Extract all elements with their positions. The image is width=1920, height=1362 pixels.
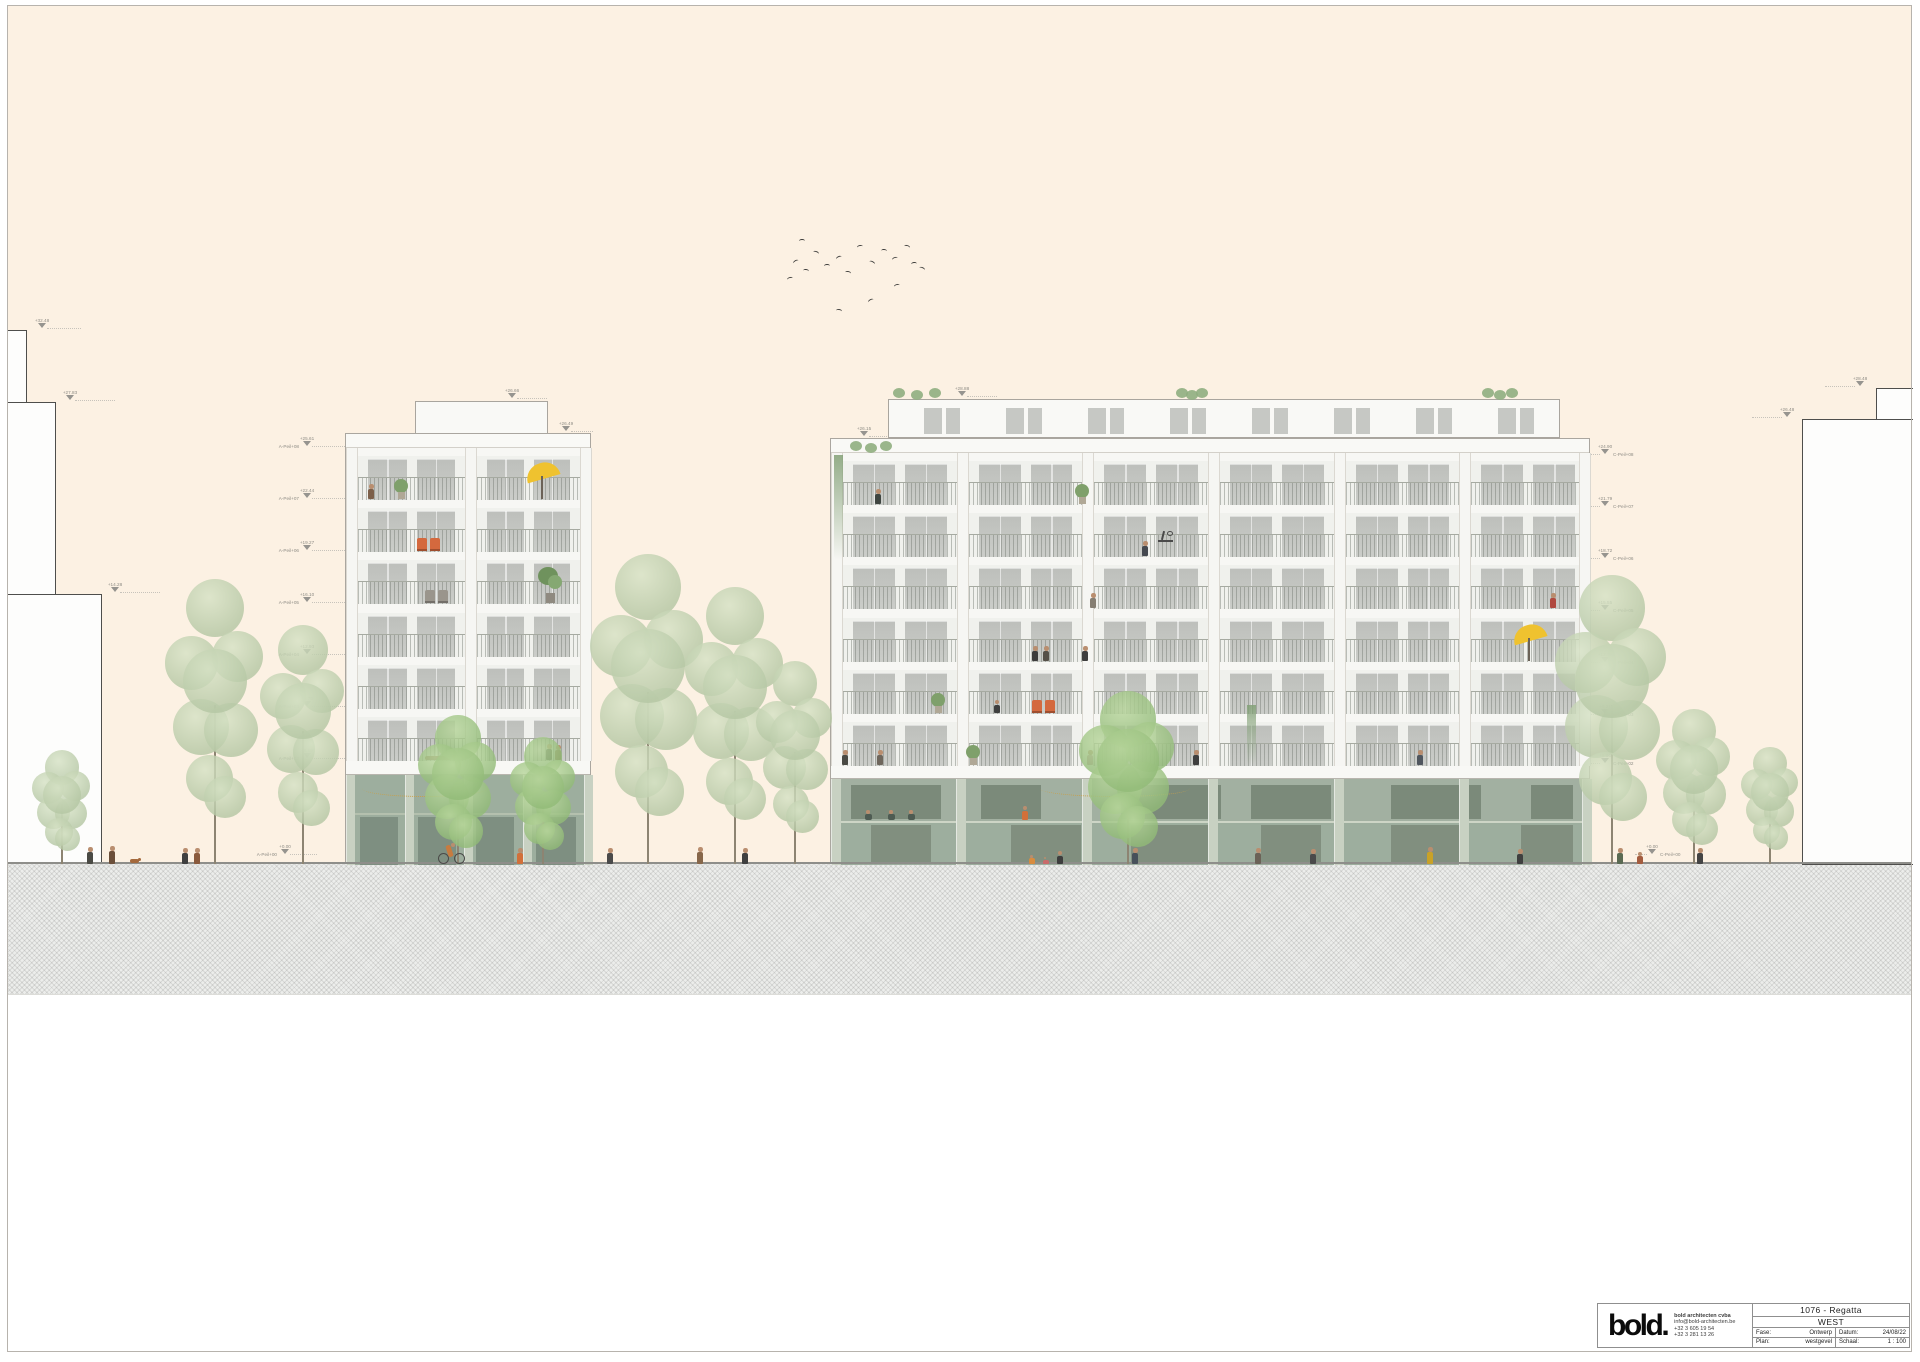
cyclist-head <box>451 843 455 847</box>
balcony-railing <box>1220 639 1334 662</box>
mezzanine-interior <box>981 785 1041 819</box>
person-head <box>1311 849 1316 854</box>
tree-foliage <box>786 800 819 833</box>
context-building-right <box>1876 388 1913 420</box>
ground-column <box>1208 779 1218 865</box>
plan-label: Plan: <box>1753 1338 1789 1347</box>
person-figure <box>517 848 524 864</box>
bird-icon <box>891 256 898 262</box>
balcony-opening <box>843 722 957 766</box>
person-head <box>1256 848 1261 853</box>
chair <box>1045 700 1055 713</box>
person-figure <box>1517 849 1524 864</box>
bird-icon <box>824 264 830 268</box>
balcony-railing <box>1471 482 1585 505</box>
tree-foliage <box>55 826 80 851</box>
tree-foliage <box>275 683 331 739</box>
right-building-parapet <box>831 439 1589 453</box>
shrub-blob <box>850 441 862 451</box>
bicycle-wheel <box>454 853 465 864</box>
level-marker-arrow-icon <box>1856 381 1864 386</box>
level-name-label: A-Peil+06 <box>264 548 299 553</box>
balcony-opening <box>1346 722 1460 766</box>
person-figure <box>875 489 882 504</box>
level-elevation-label: +16.10 <box>295 592 318 597</box>
balcony-opening <box>1346 461 1460 505</box>
plant-foliage <box>548 575 562 589</box>
level-marker-line <box>47 328 81 329</box>
balcony-railing <box>477 686 580 709</box>
person-body <box>842 755 848 765</box>
fase-datum-row: Fase: Ontwerp Datum: 24/08/22 <box>1753 1328 1909 1337</box>
level-elevation-label: +14.28 <box>103 582 126 587</box>
person-head <box>518 848 523 853</box>
balcony-opening <box>1220 461 1334 505</box>
storefront-interior <box>1391 825 1461 863</box>
balcony-railing <box>843 639 957 662</box>
person-figure <box>697 847 704 864</box>
shrub-blob <box>1196 388 1208 398</box>
plant-pot <box>935 706 942 713</box>
person-figure <box>1142 541 1149 556</box>
shrub-blob <box>1494 390 1506 400</box>
level-marker-arrow-icon <box>508 393 516 398</box>
bird-icon <box>911 262 917 267</box>
level-elevation-label: +28.88 <box>950 386 973 391</box>
person-head <box>1194 750 1199 755</box>
balcony-opening <box>1346 670 1460 714</box>
right-building-roof-volume <box>888 399 1560 438</box>
level-elevation-label: +18.72 <box>1593 548 1616 553</box>
level-marker-line <box>1825 386 1855 387</box>
plan-schaal-row: Plan: westgevel Schaal: 1 : 100 <box>1753 1338 1909 1347</box>
level-elevation-label: +19.27 <box>295 540 318 545</box>
penthouse-window <box>1088 408 1106 434</box>
balcony-opening <box>1346 513 1460 557</box>
balcony-opening <box>1220 565 1334 609</box>
person-figure <box>1637 852 1644 864</box>
balcony-opening <box>1346 618 1460 662</box>
bike-base <box>1158 540 1173 542</box>
tree-foliage <box>706 587 764 645</box>
facade-column <box>957 453 969 766</box>
balcony-opening <box>969 722 1083 766</box>
person-figure <box>1617 848 1624 864</box>
person-body <box>888 814 895 820</box>
balcony-opening <box>1471 513 1585 557</box>
bird-icon <box>894 283 901 288</box>
tree <box>1074 692 1182 864</box>
balcony-opening <box>843 513 957 557</box>
person-figure <box>994 700 1001 713</box>
person-figure <box>87 847 94 864</box>
level-marker-line <box>120 592 160 593</box>
tree-foliage <box>635 767 684 816</box>
person-head <box>866 810 870 814</box>
balcony-opening <box>843 618 957 662</box>
person-body <box>994 705 1000 713</box>
balcony-opening <box>969 670 1083 714</box>
person-body <box>1637 856 1643 864</box>
balcony-opening <box>1220 722 1334 766</box>
level-marker-arrow-icon <box>1601 501 1609 506</box>
penthouse-window <box>1028 408 1042 434</box>
tree-foliage <box>43 776 81 814</box>
ground-slab <box>831 766 1589 779</box>
person-head <box>878 750 883 755</box>
person-figure <box>182 848 189 864</box>
tree <box>29 749 95 864</box>
shrub-blob <box>865 443 877 453</box>
title-block-logo-cell: bold. bold architecten cvba info@bold-ar… <box>1598 1304 1753 1347</box>
person-figure <box>1310 849 1317 864</box>
person-body <box>1043 651 1049 661</box>
person-body <box>1029 858 1035 864</box>
balcony-railing <box>843 534 957 557</box>
balcony-railing <box>1346 691 1460 714</box>
chair <box>1032 700 1042 713</box>
facade-column <box>1334 453 1346 766</box>
tree <box>506 736 580 864</box>
person-head <box>698 847 703 852</box>
person-head <box>1428 847 1433 852</box>
balcony-opening <box>1220 618 1334 662</box>
level-marker-line <box>75 400 115 401</box>
balcony-railing <box>1346 743 1460 766</box>
tree-foliage <box>1599 773 1647 821</box>
parasol-pole <box>541 476 543 499</box>
balcony-railing <box>477 634 580 657</box>
level-elevation-label: +26.15 <box>852 426 875 431</box>
plan-value: westgevel <box>1789 1338 1835 1347</box>
bird-icon <box>799 239 805 243</box>
tree-foliage <box>293 790 329 826</box>
level-marker-line <box>517 398 547 399</box>
level-marker-arrow-icon <box>562 426 570 431</box>
person-body <box>1057 856 1063 864</box>
penthouse-window <box>1192 408 1206 434</box>
penthouse-window <box>1274 408 1288 434</box>
tree-foliage <box>1686 813 1718 845</box>
person-figure <box>1697 848 1704 864</box>
level-name-label: C-Peil+07 <box>1613 504 1648 509</box>
person-body <box>87 852 93 864</box>
penthouse-window <box>1438 408 1452 434</box>
level-marker-line <box>312 550 345 551</box>
tree-foliage <box>611 629 685 703</box>
person-body <box>1617 853 1623 864</box>
person-figure <box>842 750 849 765</box>
person-figure <box>194 848 201 864</box>
level-marker-arrow-icon <box>66 395 74 400</box>
level-marker-arrow-icon <box>38 323 46 328</box>
left-building-roof-volume <box>415 401 548 434</box>
tree-foliage <box>1117 806 1158 847</box>
chair <box>438 590 448 603</box>
penthouse-window <box>1252 408 1270 434</box>
person-body <box>1043 860 1049 864</box>
level-marker-line <box>312 602 345 603</box>
balcony-opening <box>969 618 1083 662</box>
person-head <box>1044 857 1046 859</box>
balcony-railing <box>358 634 465 657</box>
tree-foliage <box>770 710 820 760</box>
facade-column <box>1459 453 1471 766</box>
balcony-opening <box>477 508 580 552</box>
plant-foliage <box>966 745 980 759</box>
person-head <box>608 848 613 853</box>
shrub-blob <box>929 388 941 398</box>
person-figure <box>742 848 749 864</box>
person-figure <box>877 750 884 765</box>
chair <box>417 538 427 551</box>
person-body <box>1255 853 1261 864</box>
tree-foliage <box>1764 825 1788 849</box>
balcony-opening <box>1346 565 1460 609</box>
schaal-label: Schaal: <box>1835 1338 1873 1347</box>
level-marker-arrow-icon <box>1601 449 1609 454</box>
tree-foliage <box>536 822 564 850</box>
tree <box>255 609 351 864</box>
person-body <box>182 853 188 864</box>
person-head <box>88 847 93 852</box>
parasol-pole <box>1528 638 1530 661</box>
shrub-blob <box>880 441 892 451</box>
person-head <box>183 848 188 853</box>
person-figure <box>1417 750 1424 765</box>
person-body <box>194 853 200 864</box>
fase-label: Fase: <box>1753 1328 1789 1336</box>
tree <box>752 649 838 864</box>
penthouse-window <box>1520 408 1534 434</box>
tree-foliage <box>1751 773 1788 810</box>
person-body <box>865 814 872 820</box>
bird-icon <box>868 260 875 266</box>
level-elevation-label: +26.49 <box>554 421 577 426</box>
plant-foliage <box>1075 484 1089 498</box>
penthouse-window <box>1334 408 1352 434</box>
elevation-scene: +32.48+27.83+14.28+28.48+26.48+26.66+26.… <box>0 0 1920 1362</box>
mezzanine-interior <box>1251 785 1331 819</box>
person-head <box>1143 541 1148 546</box>
person-body <box>1022 811 1028 820</box>
person-head <box>1698 848 1703 853</box>
person-body <box>109 851 115 864</box>
shrub-blob <box>1482 388 1494 398</box>
tree-foliage <box>204 776 247 819</box>
level-name-label: A-Peil+08 <box>264 444 299 449</box>
balcony-opening <box>969 461 1083 505</box>
storefront-interior <box>360 817 398 865</box>
balcony-railing <box>477 581 580 604</box>
firm-contact-block: bold architecten cvba info@bold-architec… <box>1674 1313 1735 1338</box>
balcony-railing <box>1220 691 1334 714</box>
balcony-opening <box>358 560 465 604</box>
person-body <box>1132 853 1138 864</box>
balcony-railing <box>1471 534 1585 557</box>
balcony-opening <box>843 461 957 505</box>
person-body <box>875 494 881 504</box>
person-body <box>1090 598 1096 608</box>
plant-foliage <box>394 479 408 493</box>
person-head <box>843 750 848 755</box>
level-name-label: C-Peil+08 <box>1613 452 1648 457</box>
person-figure <box>1255 848 1262 864</box>
cyclist-figure <box>438 844 468 864</box>
bird-icon <box>812 250 819 256</box>
person-body <box>697 852 703 864</box>
level-elevation-label: +22.44 <box>295 488 318 493</box>
level-elevation-label: +26.48 <box>1775 407 1798 412</box>
project-title: 1076 - Regatta <box>1753 1304 1909 1317</box>
bird-icon <box>803 269 809 274</box>
person-body <box>1032 651 1038 661</box>
person-head <box>995 700 999 704</box>
parapet-shrub <box>893 388 939 399</box>
penthouse-window <box>946 408 960 434</box>
person-head <box>1091 593 1096 598</box>
person-head <box>743 848 748 853</box>
plant-foliage <box>931 693 945 707</box>
level-marker-arrow-icon <box>958 391 966 396</box>
balcony-railing <box>1094 586 1208 609</box>
person-head <box>1418 750 1423 755</box>
penthouse-window <box>1110 408 1124 434</box>
balcony-railing <box>358 581 465 604</box>
level-elevation-label: +27.83 <box>58 390 81 395</box>
balcony-railing <box>969 743 1083 766</box>
tree <box>1738 744 1802 864</box>
level-marker-arrow-icon <box>303 441 311 446</box>
chair <box>430 538 440 551</box>
tree-foliage <box>1670 745 1719 794</box>
level-marker-line <box>571 431 593 432</box>
person-figure <box>1032 646 1039 661</box>
balcony-railing <box>477 529 580 552</box>
balcony-railing <box>969 639 1083 662</box>
balcony-railing <box>843 743 957 766</box>
balcony-railing <box>969 482 1083 505</box>
balcony-opening <box>1094 461 1208 505</box>
right-building-ground-floor <box>831 766 1589 865</box>
person-head <box>909 810 913 814</box>
balcony-opening <box>1220 670 1334 714</box>
parapet-shrub <box>850 441 890 452</box>
level-marker-arrow-icon <box>303 493 311 498</box>
level-marker-arrow-icon <box>1783 412 1791 417</box>
person-body <box>1427 852 1433 864</box>
tree-foliage <box>522 766 565 809</box>
person-head <box>1044 646 1049 651</box>
level-elevation-label: +21.79 <box>1593 496 1616 501</box>
ground-column <box>956 779 966 865</box>
datum-value: 24/08/22 <box>1873 1328 1909 1336</box>
balcony-railing <box>843 482 957 505</box>
balcony-railing <box>1346 482 1460 505</box>
ground-column <box>1459 779 1469 865</box>
shrub-blob <box>893 388 905 398</box>
person-body <box>1142 546 1148 556</box>
penthouse-window <box>1498 408 1516 434</box>
person-body <box>1193 755 1199 765</box>
balcony-railing <box>1346 586 1460 609</box>
person-head <box>195 848 200 853</box>
penthouse-window <box>924 408 942 434</box>
tree <box>1652 706 1736 864</box>
bird-icon <box>857 244 864 249</box>
person-figure <box>1029 855 1036 864</box>
person-figure <box>1090 593 1097 608</box>
tree-foliage <box>278 625 328 675</box>
person-head <box>1133 848 1138 853</box>
bird-icon <box>787 276 794 281</box>
person-body <box>1417 755 1423 765</box>
person-head <box>110 846 115 851</box>
level-elevation-label: +25.61 <box>295 436 318 441</box>
drawing-sheet: +32.48+27.83+14.28+28.48+26.48+26.66+26.… <box>0 0 1920 1362</box>
balcony-opening <box>1471 461 1585 505</box>
shrub-blob <box>911 390 923 400</box>
level-marker-line <box>1752 417 1782 418</box>
person-body <box>742 853 748 864</box>
level-marker-arrow-icon <box>860 431 868 436</box>
tree-foliage <box>186 579 244 637</box>
schaal-value: 1 : 100 <box>1873 1338 1909 1347</box>
storefront-interior <box>871 825 931 863</box>
person-figure <box>368 484 375 499</box>
tree-foliage <box>1097 729 1160 792</box>
balcony-railing <box>1094 534 1208 557</box>
bold-logo-text: bold <box>1608 1309 1661 1342</box>
level-marker-line <box>312 446 345 447</box>
level-elevation-label: +26.66 <box>500 388 523 393</box>
balcony-railing <box>1220 586 1334 609</box>
person-head <box>876 489 881 494</box>
level-elevation-label: +28.48 <box>1848 376 1871 381</box>
hanging-vine <box>1247 705 1256 765</box>
person-figure <box>109 846 116 864</box>
balcony-opening <box>477 665 580 709</box>
balcony-opening <box>1220 513 1334 557</box>
person-figure <box>1043 857 1050 864</box>
person-body <box>1517 854 1523 864</box>
balcony-railing <box>1094 482 1208 505</box>
level-marker-arrow-icon <box>303 597 311 602</box>
person-head <box>1518 849 1523 854</box>
tree-foliage <box>1575 644 1648 717</box>
balcony-railing <box>1220 743 1334 766</box>
bird-icon <box>918 266 925 272</box>
penthouse-window <box>1356 408 1370 434</box>
level-marker-arrow-icon <box>1601 553 1609 558</box>
balcony-railing <box>1094 639 1208 662</box>
parapet-shrub <box>1176 388 1206 399</box>
hanging-vine <box>834 455 843 560</box>
level-marker-line <box>967 396 997 397</box>
plant-pot <box>546 593 555 603</box>
balcony-railing <box>843 586 957 609</box>
ground-column <box>1334 779 1344 865</box>
person-head <box>1618 848 1623 853</box>
balcony-opening <box>358 665 465 709</box>
balcony-opening <box>477 613 580 657</box>
title-block: bold. bold architecten cvba info@bold-ar… <box>1597 1303 1910 1348</box>
right-building <box>830 438 1590 864</box>
level-marker-arrow-icon <box>303 545 311 550</box>
person-head <box>1058 851 1062 855</box>
level-elevation-label: +24.90 <box>1593 444 1616 449</box>
person-body <box>607 853 613 864</box>
